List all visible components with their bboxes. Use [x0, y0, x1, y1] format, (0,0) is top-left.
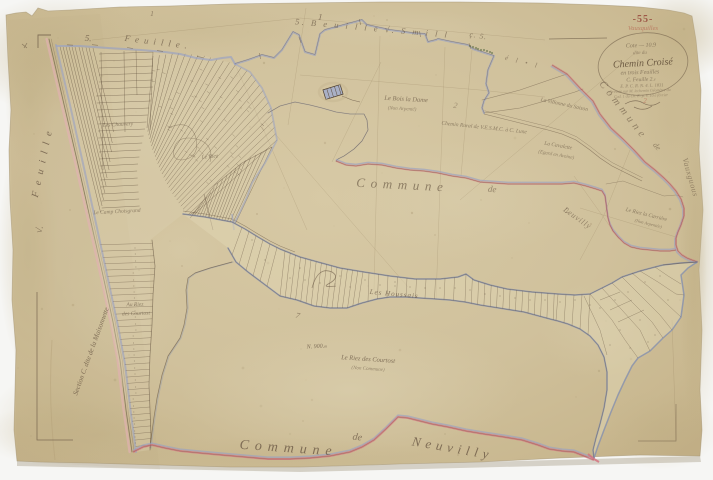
svg-text:des Courtost: des Courtost	[122, 310, 151, 317]
svg-text:1: 1	[150, 10, 154, 18]
svg-text:dite du: dite du	[633, 51, 647, 56]
svg-text:N. 900.m: N. 900.m	[306, 343, 328, 350]
svg-text:de: de	[488, 184, 497, 195]
svg-text:Vauxquilles: Vauxquilles	[628, 25, 658, 32]
svg-text:Au Riez: Au Riez	[125, 302, 144, 309]
svg-text:2: 2	[565, 207, 569, 215]
svg-text:Cote — 10.9: Cote — 10.9	[626, 42, 656, 49]
svg-text:2: 2	[643, 97, 647, 105]
svg-text:-55-: -55-	[633, 14, 654, 25]
svg-text:5.: 5.	[84, 33, 91, 43]
